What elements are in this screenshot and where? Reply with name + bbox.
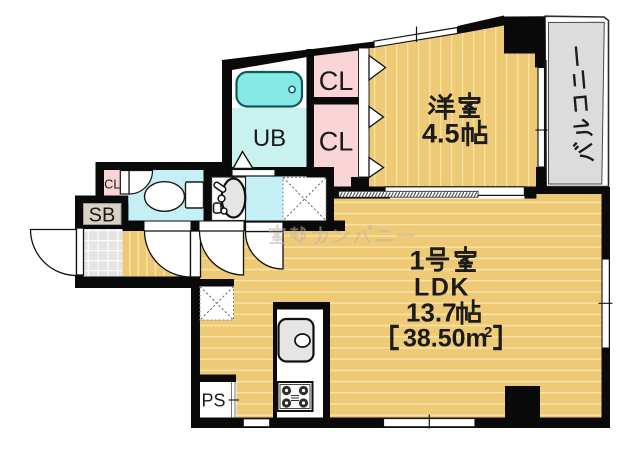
svg-text:CL: CL: [104, 178, 120, 192]
svg-text:UB: UB: [253, 125, 286, 152]
svg-text:13.7: 13.7: [406, 298, 457, 328]
svg-text:1: 1: [409, 246, 424, 276]
svg-text:CL: CL: [319, 66, 354, 96]
svg-text:4.5: 4.5: [422, 119, 460, 149]
svg-text:SB: SB: [89, 205, 116, 227]
svg-text:PS: PS: [201, 391, 225, 411]
svg-text:CL: CL: [319, 127, 354, 157]
svg-text:2: 2: [484, 324, 492, 341]
svg-text:38.50m: 38.50m: [403, 325, 488, 353]
